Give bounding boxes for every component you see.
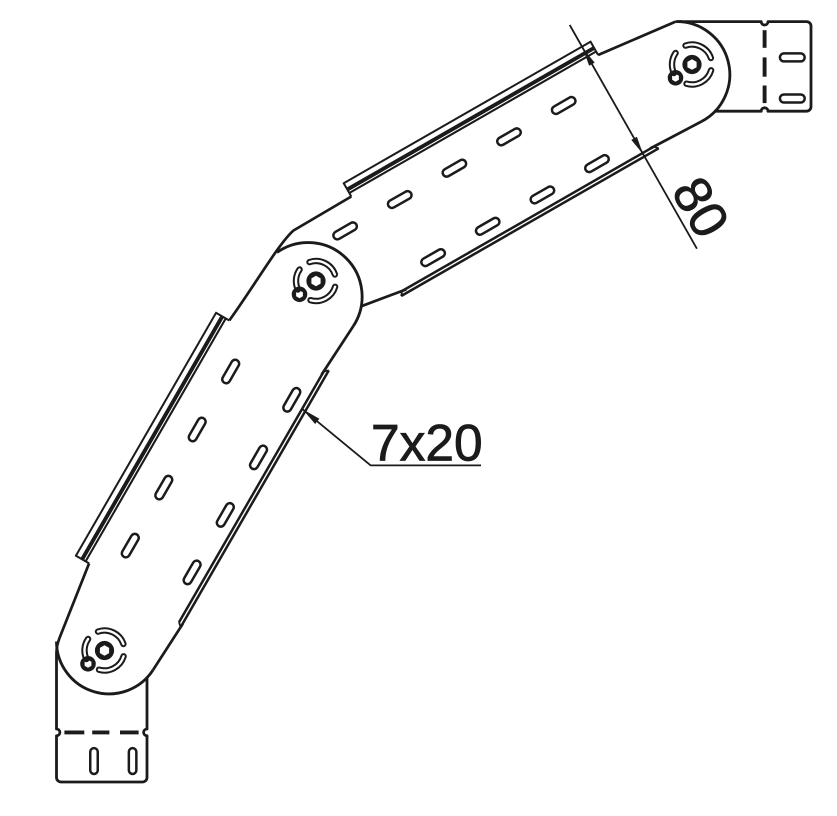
svg-text:7x20: 7x20 — [371, 414, 483, 472]
